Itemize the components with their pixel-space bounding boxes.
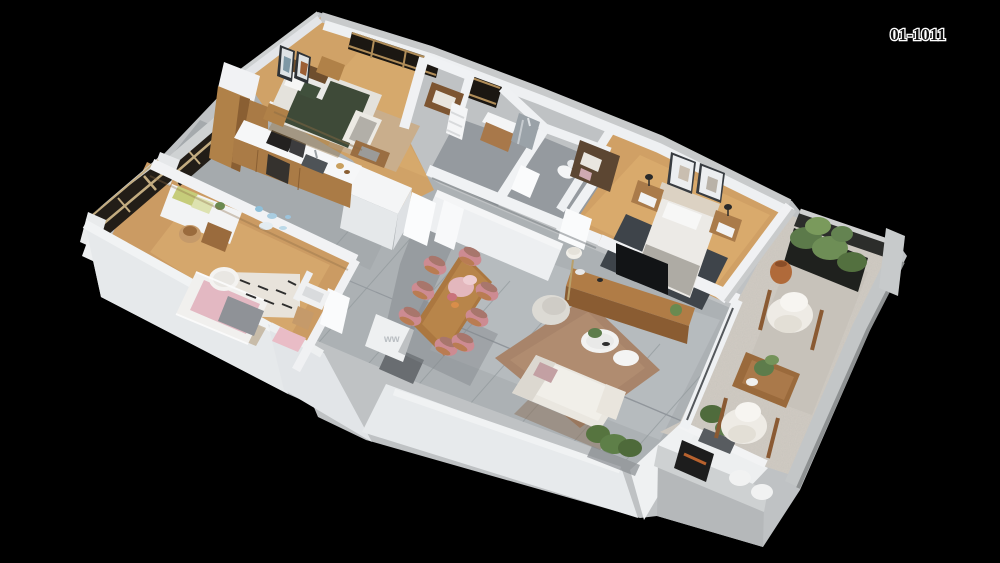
- svg-text:01-1011: 01-1011: [890, 25, 946, 44]
- svg-text:ww: ww: [383, 334, 400, 345]
